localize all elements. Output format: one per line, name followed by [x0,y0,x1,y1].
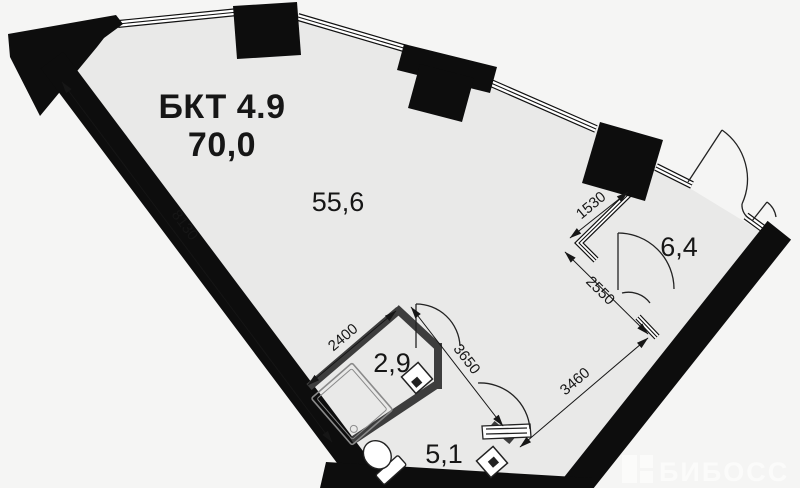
unit-label: БКТ 4.9 [158,88,285,126]
floor-plan: 8130 2400 3650 2550 1530 3460 БКТ 4.9 70… [0,0,800,488]
watermark: БИБОСС [622,455,789,487]
room-area-bathroom: 2,9 [373,348,411,378]
room-area-main: 55,6 [312,187,365,217]
room-area-hall: 5,1 [425,439,463,469]
total-area: 70,0 [188,126,256,164]
column-1 [233,2,301,59]
room-area-right: 6,4 [660,232,698,262]
watermark-text: БИБОСС [659,457,789,487]
